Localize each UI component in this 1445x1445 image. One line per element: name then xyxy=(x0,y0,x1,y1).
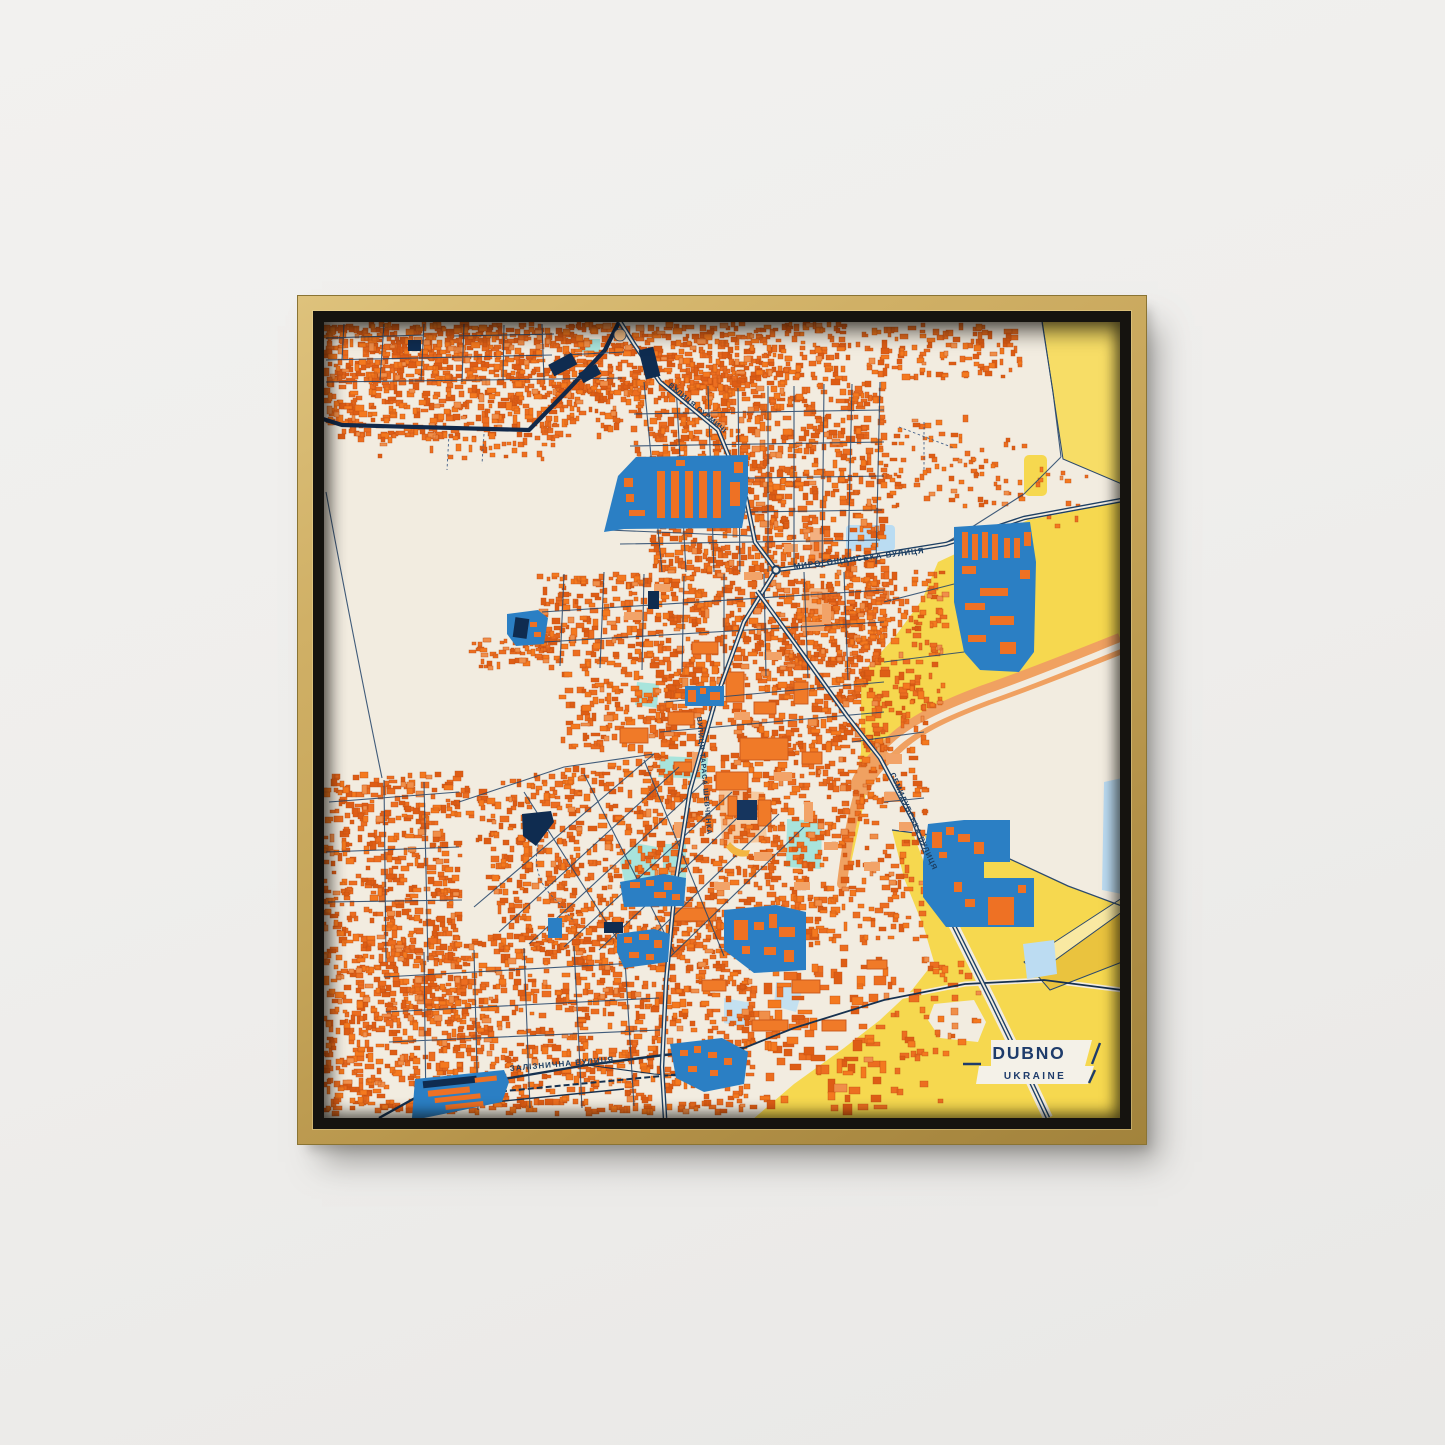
svg-text:UKRAINE: UKRAINE xyxy=(1004,1071,1066,1082)
svg-text:DUBNO: DUBNO xyxy=(992,1043,1065,1063)
